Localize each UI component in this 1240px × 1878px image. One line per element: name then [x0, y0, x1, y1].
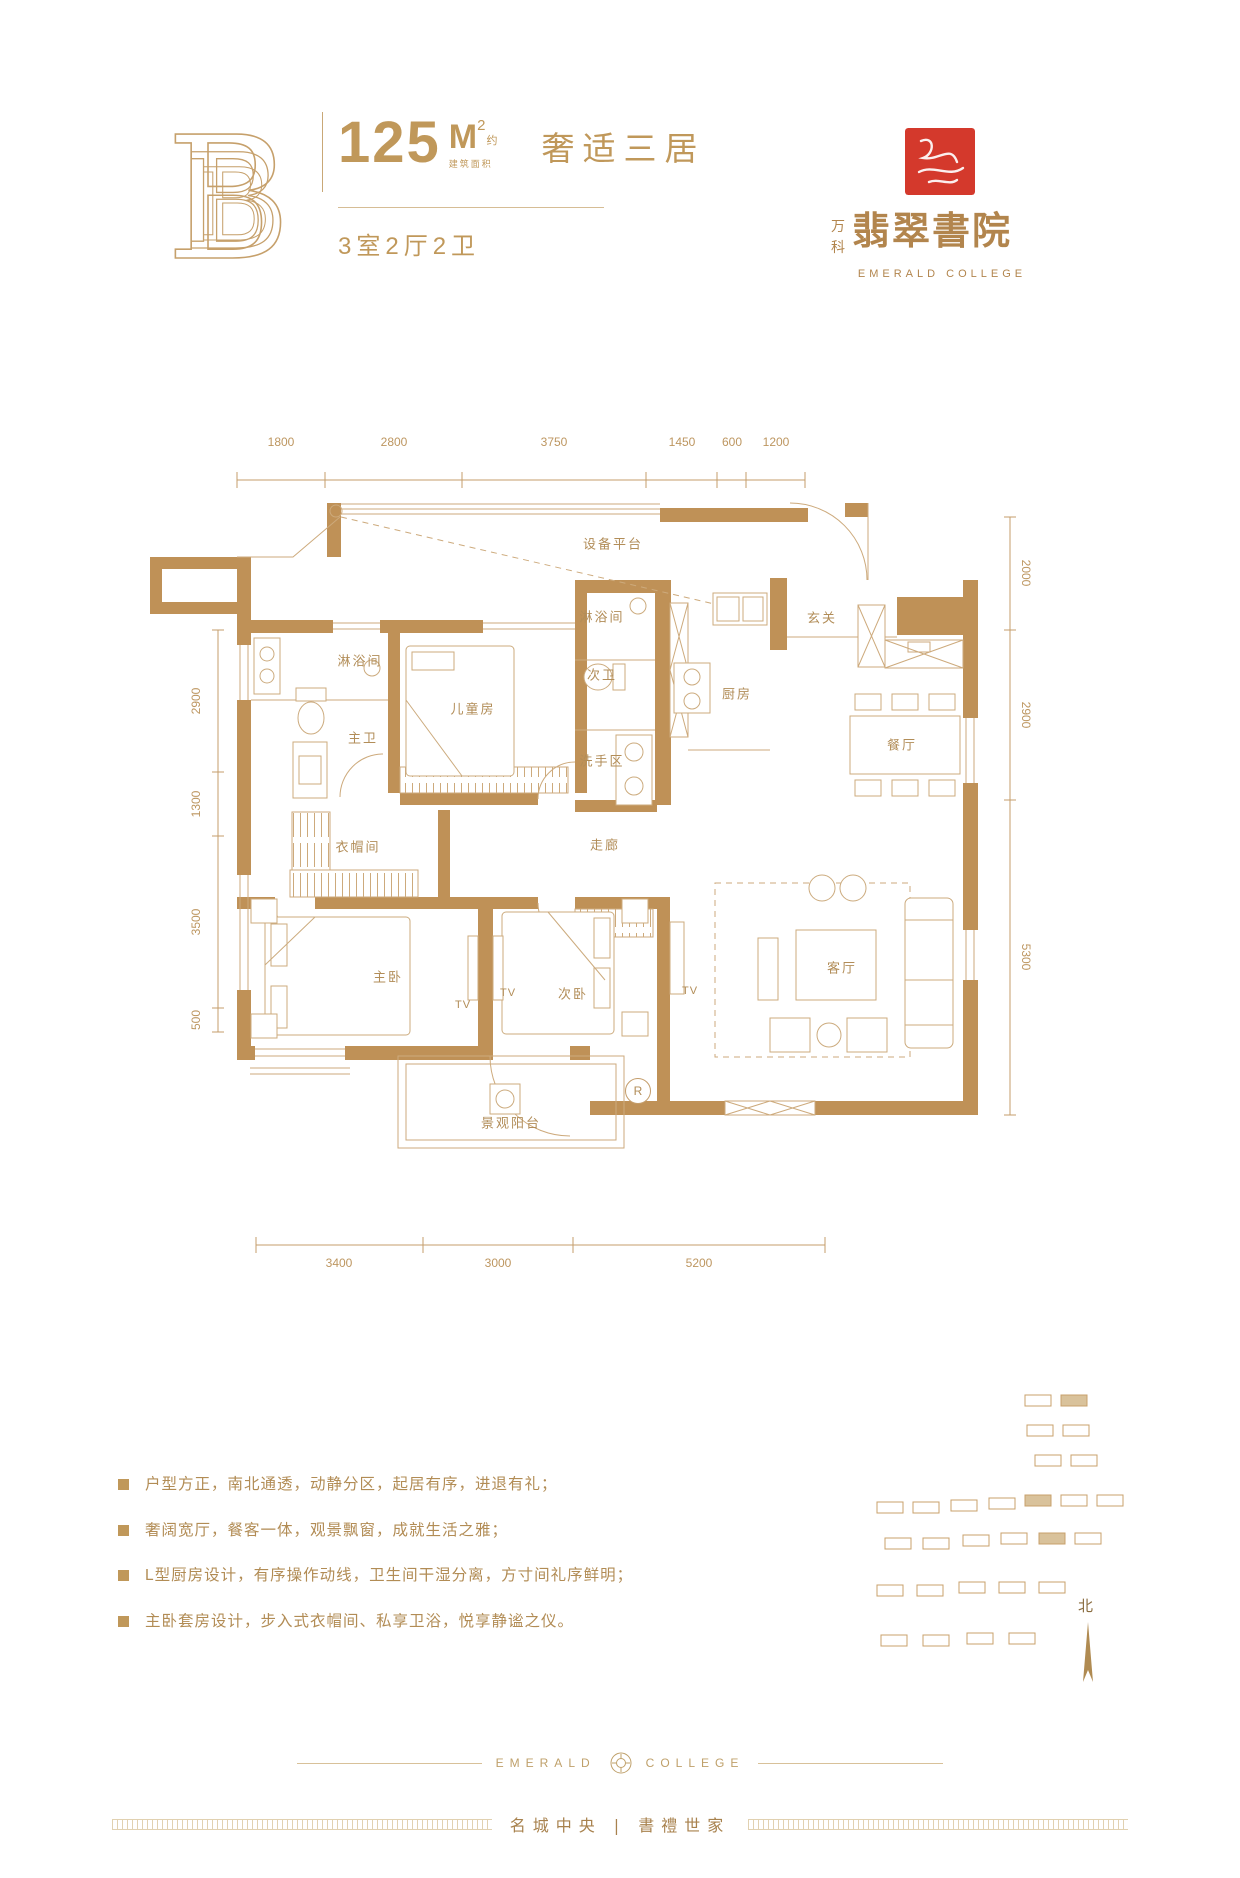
feature-item: 户型方正，南北通透，动静分区，起居有序，进退有礼； — [118, 1474, 633, 1496]
brand-name-en: EMERALD COLLEGE — [831, 268, 1053, 280]
tv-marker-master: TV — [455, 999, 471, 1011]
feature-item: 奢阔宽厅，餐客一体，观景飘窗，成就生活之雅； — [118, 1520, 633, 1542]
area-block: 125 M 2 约 建筑面积 奢适三居 — [338, 114, 705, 172]
brand-prefix: 万 科 — [831, 216, 846, 258]
room-spec: 3室2厅2卫 — [338, 226, 480, 261]
dim-bottom-2: 3000 — [485, 1256, 512, 1270]
feature-text-4: 主卧套房设计，步入式衣帽间、私享卫浴，悦享静谧之仪。 — [145, 1611, 574, 1633]
unit-b-monogram: B B B — [160, 100, 320, 280]
brand-prefix-bottom: 科 — [831, 237, 846, 258]
area-number: 125 — [338, 114, 441, 172]
dim-bottom-3: 5200 — [686, 1256, 713, 1270]
dim-top-2: 2800 — [381, 435, 408, 449]
bullet-square-icon — [118, 1525, 129, 1536]
brand-red-seal — [905, 128, 975, 195]
room-corridor: 走廊 — [590, 835, 620, 854]
footer-slogan-band: 名城中央 | 書禮世家 — [112, 1812, 1128, 1836]
room-master-bath: 主卫 — [348, 728, 378, 747]
room-second-bath: 次卫 — [587, 665, 617, 684]
floorplan-poster: { "header": { "unit_letter": "B", "area_… — [0, 0, 1240, 1878]
dim-top-5: 600 — [722, 435, 742, 449]
area-approx: 约 — [486, 136, 497, 147]
site-plan-buildings — [875, 1390, 1155, 1700]
bullet-square-icon — [118, 1616, 129, 1627]
feature-item: 主卧套房设计，步入式衣帽间、私享卫浴，悦享静谧之仪。 — [118, 1611, 633, 1633]
room-shower-2: 淋浴间 — [579, 607, 624, 626]
area-unit-sup: 2 — [477, 118, 485, 133]
dim-bottom-1: 3400 — [326, 1256, 353, 1270]
room-kids-room: 儿童房 — [450, 699, 495, 718]
dim-left-3: 3500 — [189, 909, 203, 936]
footer-brand-right: COLLEGE — [646, 1756, 745, 1770]
dim-right-2: 2900 — [1019, 702, 1033, 729]
room-master-bedroom: 主卧 — [373, 967, 403, 986]
feature-text-1: 户型方正，南北通透，动静分区，起居有序，进退有礼； — [145, 1474, 558, 1496]
tv-marker-second: TV — [500, 987, 516, 999]
footer-slogan: 名城中央 | 書禮世家 — [492, 1812, 749, 1836]
room-foyer: 玄关 — [807, 608, 837, 627]
footer-emblem-icon — [610, 1752, 632, 1774]
footer-rule-right — [758, 1763, 943, 1764]
ornament-strip-left — [112, 1819, 492, 1830]
bullet-square-icon — [118, 1570, 129, 1581]
room-living: 客厅 — [827, 958, 857, 977]
room-equipment-platform: 设备平台 — [583, 534, 643, 553]
dim-top-1: 1800 — [268, 435, 295, 449]
footer-brand-left: EMERALD — [496, 1756, 596, 1770]
brand-name-cn: 翡翠書院 — [852, 208, 1012, 254]
dim-left-2: 1300 — [189, 791, 203, 818]
dim-right-3: 5300 — [1019, 944, 1033, 971]
dim-left-1: 2900 — [189, 688, 203, 715]
feature-text-3: L型厨房设计，有序操作动线，卫生间干湿分离，方寸间礼序鲜明； — [145, 1565, 633, 1587]
header-rule — [338, 207, 604, 208]
svg-text:B: B — [198, 147, 272, 264]
dim-top-3: 3750 — [541, 435, 568, 449]
headline: 奢适三居 — [541, 122, 705, 170]
dim-left-4: 500 — [189, 1010, 203, 1030]
room-second-bedroom: 次卧 — [558, 984, 588, 1003]
footer-brand-line: EMERALD COLLEGE — [0, 1752, 1240, 1774]
footer-rule-left — [297, 1763, 482, 1764]
bullet-square-icon — [118, 1479, 129, 1490]
tv-marker-living: TV — [682, 985, 698, 997]
room-dining: 餐厅 — [887, 735, 917, 754]
floor-plan: 1800 2800 3750 1450 600 1200 2900 1300 3… — [150, 420, 1030, 1280]
rain-pipe-marker: R — [625, 1078, 651, 1104]
room-balcony: 景观阳台 — [481, 1113, 541, 1132]
header-divider — [322, 112, 323, 192]
area-unit-block: M 2 约 建筑面积 — [449, 120, 498, 170]
area-unit: M — [449, 120, 477, 154]
north-label: 北 — [1078, 1595, 1093, 1616]
feature-item: L型厨房设计，有序操作动线，卫生间干湿分离，方寸间礼序鲜明； — [118, 1565, 633, 1587]
dim-top-6: 1200 — [763, 435, 790, 449]
feature-text-2: 奢阔宽厅，餐客一体，观景飘窗，成就生活之雅； — [145, 1520, 508, 1542]
feature-list: 户型方正，南北通透，动静分区，起居有序，进退有礼； 奢阔宽厅，餐客一体，观景飘窗… — [118, 1474, 633, 1657]
area-caption: 建筑面积 — [449, 157, 498, 170]
dim-top-4: 1450 — [669, 435, 696, 449]
dim-right-1: 2000 — [1019, 560, 1033, 587]
ornament-strip-right — [748, 1819, 1128, 1830]
room-shower-1: 淋浴间 — [337, 651, 382, 670]
brand-name: 万 科 翡翠書院 — [831, 208, 1012, 258]
site-plan: 北 — [875, 1390, 1155, 1700]
north-arrow-needle — [1083, 1622, 1093, 1682]
room-cloakroom: 衣帽间 — [335, 837, 380, 856]
brand-prefix-top: 万 — [831, 216, 846, 237]
room-wash-area: 洗手区 — [579, 751, 624, 770]
room-kitchen: 厨房 — [722, 684, 752, 703]
